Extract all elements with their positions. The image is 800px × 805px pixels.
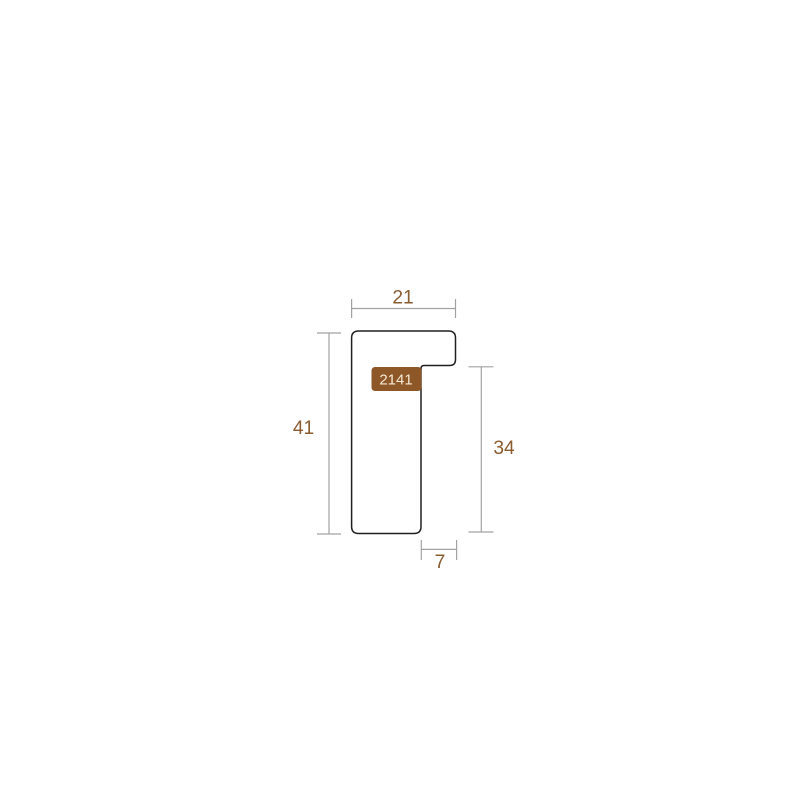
svg-text:7: 7 — [435, 552, 446, 573]
svg-text:21: 21 — [392, 288, 413, 309]
svg-text:34: 34 — [493, 438, 515, 459]
svg-text:41: 41 — [293, 418, 314, 439]
svg-text:2141: 2141 — [379, 372, 412, 389]
